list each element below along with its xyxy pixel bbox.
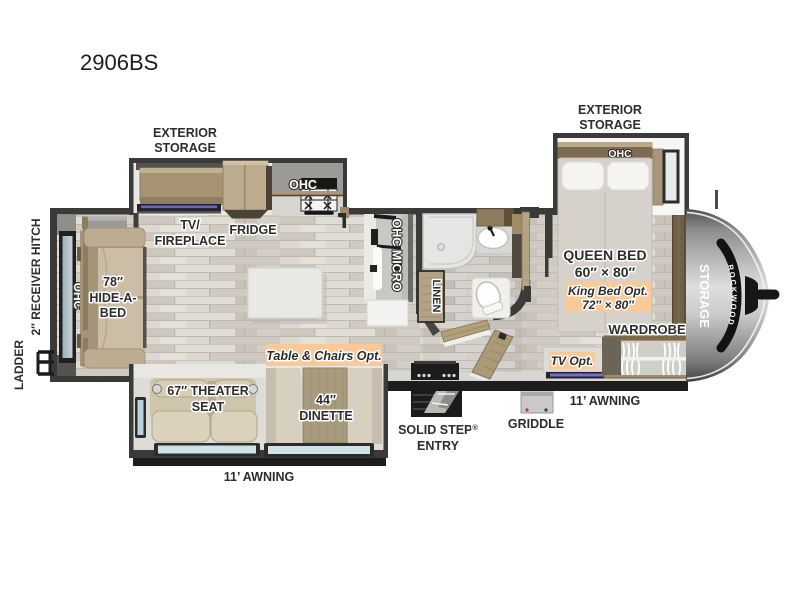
svg-text:60″ × 80″: 60″ × 80″ xyxy=(575,264,636,280)
svg-text:King Bed Opt.: King Bed Opt. xyxy=(568,284,648,298)
svg-text:2906BS: 2906BS xyxy=(80,50,158,75)
svg-text:SEAT: SEAT xyxy=(192,400,225,414)
svg-text:72″ × 80″: 72″ × 80″ xyxy=(582,298,635,312)
svg-text:STORAGE: STORAGE xyxy=(154,141,216,155)
svg-text:OHC MICRO: OHC MICRO xyxy=(390,219,404,292)
svg-text:LINEN: LINEN xyxy=(430,280,442,313)
svg-text:FRIDGE: FRIDGE xyxy=(229,223,276,237)
svg-text:QUEEN BED: QUEEN BED xyxy=(563,247,646,263)
svg-text:SOLID STEP®: SOLID STEP® xyxy=(398,423,478,437)
svg-text:FIREPLACE: FIREPLACE xyxy=(155,234,226,248)
svg-text:STORAGE: STORAGE xyxy=(579,118,641,132)
svg-text:OHC: OHC xyxy=(289,178,317,192)
svg-text:STORAGE: STORAGE xyxy=(697,264,712,328)
svg-text:44″: 44″ xyxy=(316,393,336,407)
svg-text:67″ THEATER: 67″ THEATER xyxy=(167,384,248,398)
svg-text:2″ RECEIVER HITCH: 2″ RECEIVER HITCH xyxy=(29,218,43,335)
svg-text:TV/: TV/ xyxy=(180,218,200,232)
svg-text:Table & Chairs Opt.: Table & Chairs Opt. xyxy=(266,349,382,363)
svg-text:11’ AWNING: 11’ AWNING xyxy=(570,394,640,408)
svg-text:BED: BED xyxy=(100,306,126,320)
svg-text:ENTRY: ENTRY xyxy=(417,439,460,453)
svg-text:WARDROBE: WARDROBE xyxy=(608,322,686,337)
svg-text:78″: 78″ xyxy=(103,275,123,289)
svg-text:EXTERIOR: EXTERIOR xyxy=(153,126,217,140)
svg-text:11’ AWNING: 11’ AWNING xyxy=(224,470,294,484)
svg-text:DINETTE: DINETTE xyxy=(299,409,352,423)
svg-text:GRIDDLE: GRIDDLE xyxy=(508,417,564,431)
svg-text:HIDE-A-: HIDE-A- xyxy=(89,291,136,305)
svg-text:TV Opt.: TV Opt. xyxy=(551,354,594,368)
svg-text:LADDER: LADDER xyxy=(12,340,26,390)
svg-text:EXTERIOR: EXTERIOR xyxy=(578,103,642,117)
